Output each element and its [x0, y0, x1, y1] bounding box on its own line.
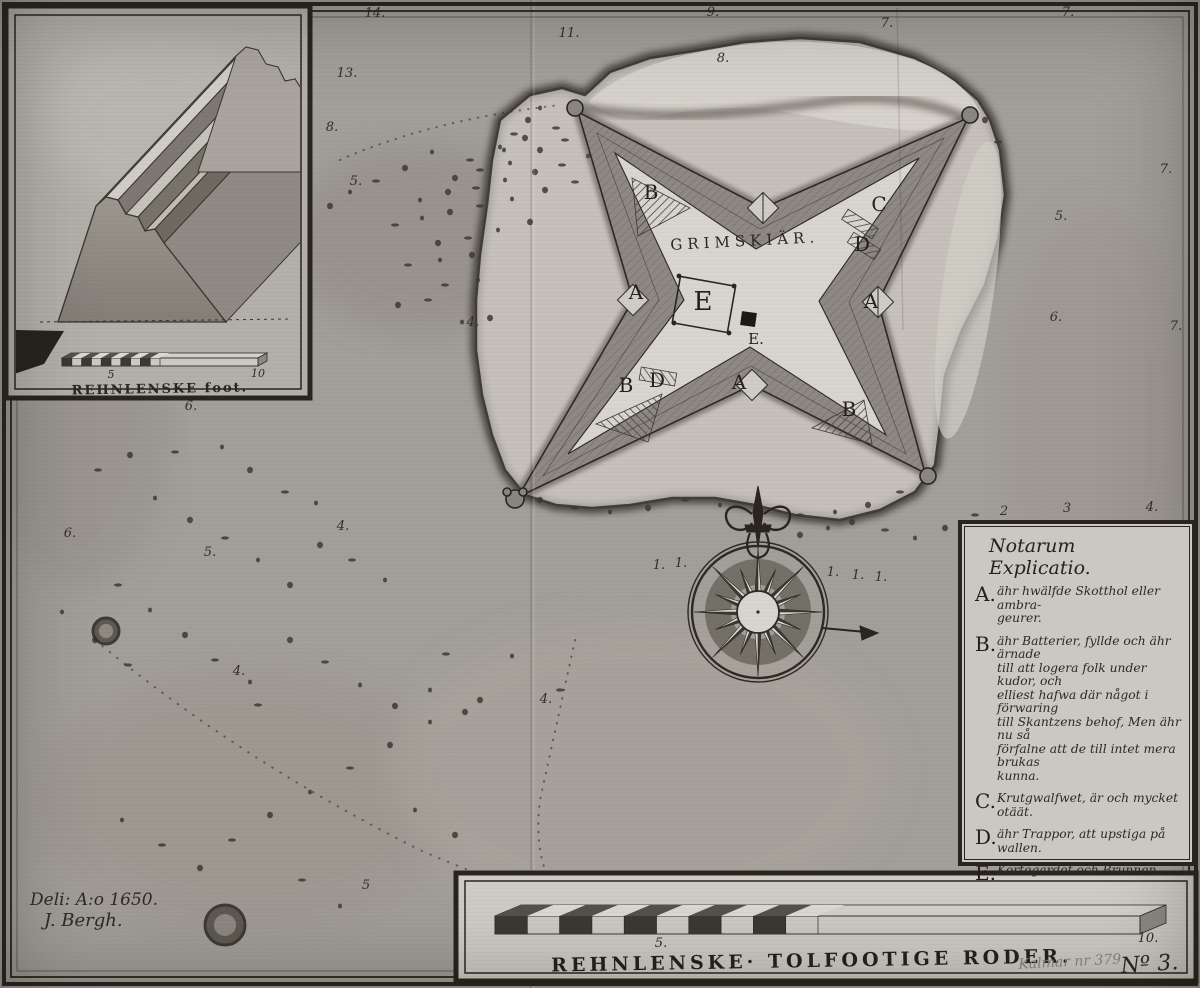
- depth-sounding: 8.: [717, 51, 729, 66]
- stone: [438, 258, 442, 263]
- fort-marker-E: E: [694, 287, 713, 317]
- stone: [248, 680, 252, 685]
- legend-panel: Notarum Explicatio. A.ähr hwälfde Skotth…: [958, 520, 1196, 866]
- stone: [496, 228, 500, 233]
- stone: [571, 180, 579, 183]
- fort-marker-E: E.: [748, 330, 764, 348]
- stone: [532, 169, 538, 175]
- legend-entry-E: E.Kortegardet och Brunnen.: [975, 864, 1183, 882]
- stone: [913, 536, 917, 541]
- stone: [221, 536, 229, 539]
- inset-scale-mid: 5: [108, 368, 115, 381]
- stone: [420, 216, 424, 221]
- legend-letter: B.: [975, 635, 997, 784]
- depth-sounding: 5.: [1055, 209, 1067, 224]
- fort-marker-B: B: [619, 373, 634, 397]
- fort-marker-B: B: [842, 397, 857, 421]
- depth-sounding: 4.: [539, 692, 552, 707]
- stone: [460, 320, 464, 325]
- depth-sounding: 13.: [337, 66, 358, 81]
- stone: [552, 126, 560, 129]
- map-sheet: GRIMSKIÄR. BCDAAEE.BDAB 14.11.9.7.7.13.8…: [0, 0, 1200, 988]
- stone: [428, 688, 432, 693]
- stone: [256, 558, 260, 563]
- stone: [372, 179, 380, 182]
- depth-sounding: 1.: [875, 570, 887, 585]
- scalebar-end: 10.: [1138, 931, 1159, 946]
- stone: [522, 135, 528, 141]
- stone: [158, 843, 166, 846]
- stone: [452, 832, 458, 838]
- signature-block: Deli: A:o 1650. J. Bergh.: [30, 890, 158, 931]
- stone: [287, 637, 293, 643]
- stone: [197, 865, 203, 871]
- legend-letter: D.: [975, 828, 997, 855]
- stone: [502, 148, 506, 153]
- stone: [171, 450, 179, 453]
- stone: [120, 818, 124, 823]
- stone: [211, 658, 219, 661]
- depth-sounding: 1.: [653, 558, 665, 573]
- stone: [392, 703, 398, 709]
- stone: [442, 652, 450, 655]
- stone: [896, 490, 904, 493]
- fort-marker-A: A: [731, 370, 747, 394]
- stone: [508, 161, 512, 166]
- depth-sounding: 5: [362, 878, 370, 893]
- stone: [402, 165, 408, 171]
- main-scale-bar: [495, 905, 1166, 934]
- stone: [510, 132, 518, 135]
- stone: [558, 163, 566, 166]
- fort-marker-D: D: [854, 232, 870, 256]
- depth-sounding: 8.: [326, 120, 338, 135]
- stone: [413, 808, 417, 813]
- well-building: [740, 311, 757, 327]
- legend-letter: A.: [975, 585, 997, 626]
- stone: [127, 452, 133, 458]
- depth-sounding: 5.: [204, 545, 216, 560]
- stone: [571, 506, 579, 509]
- stone: [510, 654, 514, 659]
- legend-letter: E.: [975, 864, 997, 882]
- stone: [797, 532, 803, 538]
- stone: [298, 878, 306, 881]
- scalebar-panel: 5. 10. REHNLENSKE· TOLFOOTIGE RODER. Kal…: [456, 873, 1196, 981]
- depth-sounding: 6.: [64, 526, 76, 541]
- stone: [537, 497, 543, 503]
- fort-marker-A: A: [628, 280, 644, 304]
- inset-scale-bar: [62, 353, 267, 366]
- depth-sounding: 1.: [675, 556, 687, 571]
- stone: [865, 502, 871, 508]
- fort-marker-D: D: [649, 368, 665, 392]
- stone: [982, 117, 988, 123]
- depth-sounding: 7.: [881, 16, 893, 31]
- sheet-number: Nº 3.: [1119, 950, 1179, 979]
- stone: [348, 558, 356, 561]
- stone: [387, 742, 393, 748]
- stone: [247, 467, 253, 473]
- inset-scale-end: 10: [251, 367, 265, 380]
- fort-marker-C: C: [871, 192, 886, 216]
- depth-sounding: 3: [1063, 501, 1071, 516]
- stone: [796, 513, 804, 516]
- depth-sounding: 9.: [707, 5, 719, 20]
- stone: [833, 510, 837, 515]
- fleur-band: [745, 525, 771, 532]
- stone: [542, 187, 548, 193]
- depth-sounding: 4.: [232, 664, 245, 679]
- stone: [287, 582, 293, 588]
- stone: [477, 697, 483, 703]
- stone: [418, 198, 422, 203]
- legend-entry-C: C.Krutgwalfwet, är och mycket otäät.: [975, 792, 1183, 819]
- stone: [472, 186, 480, 189]
- legend-entries: A.ähr hwälfde Skotthol eller ambra-geure…: [975, 585, 1183, 882]
- stone: [487, 315, 493, 321]
- stone: [452, 175, 458, 181]
- stone: [476, 278, 480, 283]
- signature-name: J. Bergh.: [30, 910, 158, 931]
- legend-text: Kortegardet och Brunnen.: [997, 864, 1160, 882]
- legend-text: ähr Trappor, att upstiga påwallen.: [997, 828, 1165, 855]
- stone: [608, 510, 612, 515]
- stone: [556, 688, 564, 691]
- profile-inset-panel: 5 10 REHNLENSKE foot.: [6, 6, 366, 399]
- stone: [267, 812, 273, 818]
- stone: [466, 158, 474, 161]
- depth-sounding: 4.: [336, 519, 349, 534]
- stone: [681, 498, 689, 501]
- stone: [498, 145, 502, 150]
- legend-title: Notarum Explicatio.: [989, 535, 1183, 579]
- stone: [94, 468, 102, 471]
- inset-scale-caption: REHNLENSKE foot.: [72, 380, 249, 398]
- signature-date: Deli: A:o 1650.: [30, 890, 158, 910]
- islet-center: [99, 624, 113, 638]
- stone: [308, 790, 312, 795]
- legend-text: ähr Batterier, fyllde och ähr ärnadetill…: [997, 635, 1183, 784]
- depth-sounding: 6.: [1050, 310, 1062, 325]
- stone: [383, 578, 387, 583]
- depth-sounding: 6.: [185, 399, 197, 414]
- stone: [441, 283, 449, 286]
- stone: [182, 632, 188, 638]
- depth-sounding: 7.: [1062, 5, 1074, 20]
- depth-sounding: 5.: [350, 174, 362, 189]
- stone: [462, 709, 468, 715]
- depth-sounding: 2: [999, 504, 1008, 519]
- stone: [327, 203, 333, 209]
- fort-marker-A: A: [863, 289, 879, 313]
- stone: [537, 147, 543, 153]
- stone: [510, 197, 514, 202]
- stone: [124, 663, 132, 666]
- legend-inner: Notarum Explicatio. A.ähr hwälfde Skotth…: [964, 526, 1190, 860]
- depth-sounding: 11.: [559, 26, 580, 41]
- stone: [942, 525, 948, 531]
- stone: [561, 138, 569, 141]
- stone: [348, 190, 352, 195]
- depth-sounding: 1.: [827, 565, 839, 580]
- legend-letter: C.: [975, 792, 997, 819]
- stone: [338, 904, 342, 909]
- stone: [404, 263, 412, 266]
- stone: [464, 236, 472, 239]
- depth-sounding: 7.: [1160, 162, 1172, 177]
- stone: [220, 445, 224, 450]
- stone: [476, 204, 484, 207]
- stone: [849, 519, 855, 525]
- stone: [445, 189, 451, 195]
- stone: [228, 838, 236, 841]
- stone: [428, 720, 432, 725]
- legend-entry-B: B.ähr Batterier, fyllde och ähr ärnadeti…: [975, 635, 1183, 784]
- legend-text: Krutgwalfwet, är och mycket otäät.: [997, 792, 1183, 819]
- stone: [430, 150, 434, 155]
- stone: [718, 503, 722, 508]
- depth-sounding: 4.: [1145, 500, 1158, 515]
- stone: [503, 178, 507, 183]
- stone: [447, 209, 453, 215]
- stone: [317, 542, 323, 548]
- depth-sounding: 7.: [1170, 319, 1182, 334]
- legend-entry-D: D.ähr Trappor, att upstiga påwallen.: [975, 828, 1183, 855]
- stone: [321, 660, 329, 663]
- stone: [971, 513, 979, 516]
- stone: [254, 703, 262, 706]
- stone: [645, 505, 651, 511]
- stone: [826, 526, 830, 531]
- islet-center: [214, 914, 236, 936]
- stone: [476, 168, 484, 171]
- stone: [469, 252, 475, 258]
- stone: [395, 302, 401, 308]
- stone: [358, 683, 362, 688]
- stone: [424, 298, 432, 301]
- legend-entry-A: A.ähr hwälfde Skotthol eller ambra-geure…: [975, 585, 1183, 626]
- stone: [187, 517, 193, 523]
- stone: [153, 496, 157, 501]
- stone: [60, 610, 64, 615]
- stone: [994, 140, 1002, 143]
- legend-text: ähr hwälfde Skotthol eller ambra-geurer.: [997, 585, 1183, 626]
- stone: [346, 766, 354, 769]
- stone: [538, 106, 542, 111]
- stone: [435, 240, 441, 246]
- depth-sounding: 1.: [852, 568, 864, 583]
- fort-marker-B: B: [644, 180, 659, 204]
- depth-sounding: 14.: [365, 6, 386, 21]
- stone: [881, 528, 889, 531]
- stone: [114, 583, 122, 586]
- scalebar-mid: 5.: [655, 936, 667, 951]
- stone: [281, 490, 289, 493]
- stone: [148, 608, 152, 613]
- stone: [391, 223, 399, 226]
- depth-sounding: 4.: [466, 315, 479, 330]
- stone: [314, 501, 318, 506]
